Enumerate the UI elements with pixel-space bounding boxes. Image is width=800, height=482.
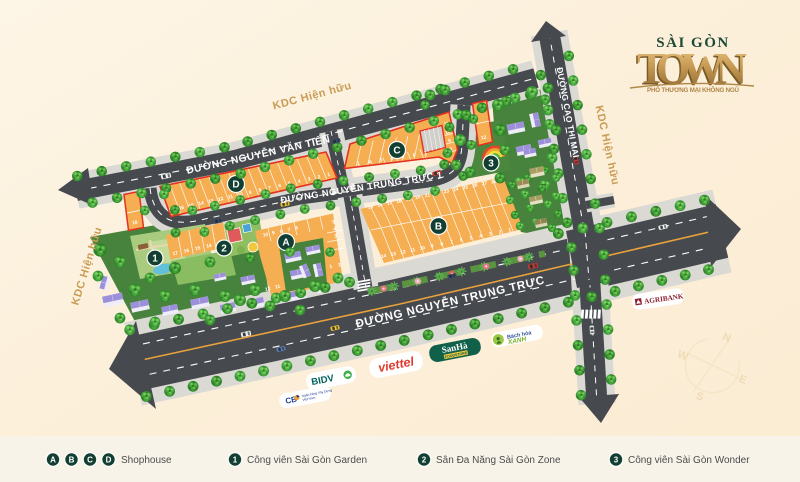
svg-text:1: 1 bbox=[152, 254, 158, 265]
svg-text:3: 3 bbox=[488, 159, 494, 170]
svg-text:D: D bbox=[232, 180, 239, 191]
svg-text:2: 2 bbox=[422, 455, 427, 464]
svg-text:B: B bbox=[435, 222, 442, 233]
svg-text:Công viên Sài Gòn Garden: Công viên Sài Gòn Garden bbox=[247, 455, 367, 466]
svg-text:A: A bbox=[282, 238, 289, 249]
svg-text:C: C bbox=[393, 146, 400, 157]
svg-text:C: C bbox=[87, 455, 93, 464]
svg-text:Shophouse: Shophouse bbox=[121, 455, 172, 466]
svg-text:Sân Đa Năng Sài Gòn Zone: Sân Đa Năng Sài Gòn Zone bbox=[436, 455, 561, 466]
svg-text:PHỐ THƯƠNG MẠI KHÔNG NGỦ: PHỐ THƯƠNG MẠI KHÔNG NGỦ bbox=[647, 86, 740, 94]
svg-text:D: D bbox=[106, 455, 112, 464]
svg-text:1: 1 bbox=[233, 455, 238, 464]
svg-text:B: B bbox=[69, 455, 75, 464]
svg-text:3: 3 bbox=[614, 455, 619, 464]
svg-text:Công viên Sài Gòn Wonder: Công viên Sài Gòn Wonder bbox=[628, 455, 750, 466]
svg-text:2: 2 bbox=[221, 244, 227, 255]
svg-text:A: A bbox=[50, 455, 56, 464]
